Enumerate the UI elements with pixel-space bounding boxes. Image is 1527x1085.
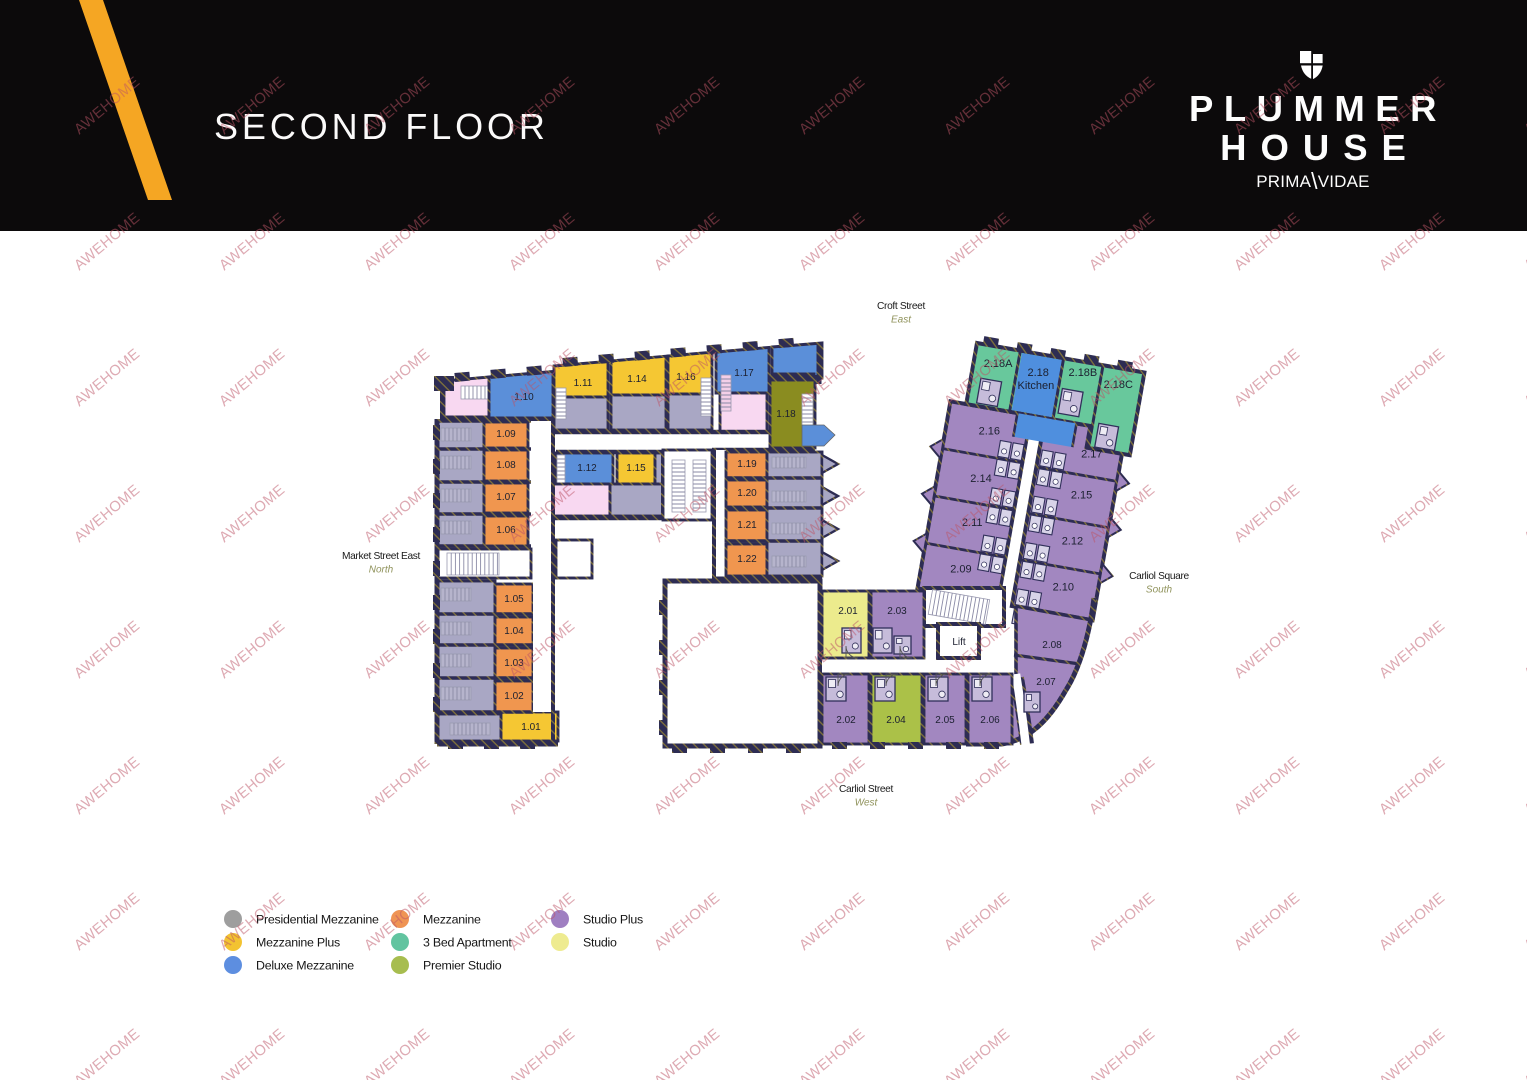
- svg-text:2.17: 2.17: [1081, 449, 1102, 461]
- svg-text:2.08: 2.08: [1042, 640, 1062, 651]
- svg-text:2.04: 2.04: [886, 715, 906, 726]
- svg-text:East: East: [891, 315, 912, 326]
- svg-text:AWEHOME: AWEHOME: [217, 1026, 289, 1080]
- svg-text:AWEHOME: AWEHOME: [1377, 1026, 1449, 1080]
- svg-text:Mezzanine: Mezzanine: [423, 913, 481, 927]
- svg-text:2.09: 2.09: [950, 564, 971, 576]
- svg-text:2.05: 2.05: [935, 715, 955, 726]
- svg-text:AWEHOME: AWEHOME: [1522, 1026, 1527, 1080]
- svg-text:AWEHOME: AWEHOME: [217, 346, 289, 410]
- svg-text:1.22: 1.22: [737, 554, 757, 565]
- svg-text:AWEHOME: AWEHOME: [1377, 618, 1449, 682]
- svg-text:1.11: 1.11: [574, 378, 593, 389]
- svg-text:AWEHOME: AWEHOME: [507, 754, 579, 818]
- svg-text:AWEHOME: AWEHOME: [217, 754, 289, 818]
- svg-text:AWEHOME: AWEHOME: [1377, 482, 1449, 546]
- svg-text:AWEHOME: AWEHOME: [1522, 890, 1527, 954]
- svg-text:Premier Studio: Premier Studio: [423, 959, 502, 973]
- svg-text:AWEHOME: AWEHOME: [1232, 754, 1304, 818]
- svg-text:AWEHOME: AWEHOME: [797, 890, 869, 954]
- svg-text:2.02: 2.02: [836, 715, 856, 726]
- svg-text:1.02: 1.02: [504, 691, 524, 702]
- svg-text:AWEHOME: AWEHOME: [652, 890, 724, 954]
- svg-text:AWEHOME: AWEHOME: [72, 482, 144, 546]
- svg-text:South: South: [1146, 585, 1173, 596]
- svg-text:AWEHOME: AWEHOME: [362, 346, 434, 410]
- svg-text:AWEHOME: AWEHOME: [362, 754, 434, 818]
- svg-text:AWEHOME: AWEHOME: [362, 482, 434, 546]
- svg-text:AWEHOME: AWEHOME: [217, 618, 289, 682]
- svg-text:AWEHOME: AWEHOME: [942, 754, 1014, 818]
- svg-text:2.16: 2.16: [979, 426, 1000, 438]
- svg-text:3 Bed Apartment: 3 Bed Apartment: [423, 936, 512, 950]
- svg-text:AWEHOME: AWEHOME: [797, 1026, 869, 1080]
- svg-text:1.17: 1.17: [734, 368, 754, 379]
- svg-text:Presidential Mezzanine: Presidential Mezzanine: [256, 913, 379, 927]
- svg-text:2.18B: 2.18B: [1069, 367, 1098, 379]
- svg-text:1.14: 1.14: [627, 374, 647, 385]
- svg-text:AWEHOME: AWEHOME: [72, 1026, 144, 1080]
- svg-text:1.12: 1.12: [577, 463, 597, 474]
- svg-text:1.21: 1.21: [737, 520, 757, 531]
- svg-text:Market Street East: Market Street East: [342, 551, 421, 562]
- svg-text:AWEHOME: AWEHOME: [1377, 890, 1449, 954]
- svg-text:AWEHOME: AWEHOME: [942, 1026, 1014, 1080]
- svg-text:AWEHOME: AWEHOME: [72, 346, 144, 410]
- svg-text:AWEHOME: AWEHOME: [72, 890, 144, 954]
- svg-text:2.12: 2.12: [1062, 536, 1083, 548]
- svg-text:AWEHOME: AWEHOME: [362, 1026, 434, 1080]
- svg-text:West: West: [855, 798, 879, 809]
- svg-text:2.03: 2.03: [887, 606, 907, 617]
- svg-text:PRIMA\VIDAE: PRIMA\VIDAE: [1256, 168, 1369, 194]
- svg-text:Mezzanine Plus: Mezzanine Plus: [256, 936, 340, 950]
- svg-text:Deluxe Mezzanine: Deluxe Mezzanine: [256, 959, 354, 973]
- svg-text:Studio: Studio: [583, 936, 617, 950]
- svg-text:1.15: 1.15: [626, 463, 646, 474]
- svg-text:1.04: 1.04: [504, 626, 524, 637]
- svg-text:Croft Street: Croft Street: [877, 301, 925, 312]
- svg-text:Studio Plus: Studio Plus: [583, 913, 643, 927]
- svg-text:AWEHOME: AWEHOME: [1232, 346, 1304, 410]
- svg-text:1.19: 1.19: [737, 459, 757, 470]
- svg-text:AWEHOME: AWEHOME: [1087, 1026, 1159, 1080]
- svg-text:Carliol Street: Carliol Street: [839, 784, 894, 795]
- svg-text:AWEHOME: AWEHOME: [942, 890, 1014, 954]
- svg-text:AWEHOME: AWEHOME: [1087, 890, 1159, 954]
- svg-text:AWEHOME: AWEHOME: [362, 618, 434, 682]
- svg-text:1.07: 1.07: [496, 492, 516, 503]
- svg-text:AWEHOME: AWEHOME: [72, 618, 144, 682]
- svg-text:AWEHOME: AWEHOME: [1522, 618, 1527, 682]
- svg-text:AWEHOME: AWEHOME: [1087, 618, 1159, 682]
- svg-text:AWEHOME: AWEHOME: [652, 1026, 724, 1080]
- svg-text:2.07: 2.07: [1036, 677, 1056, 688]
- svg-text:AWEHOME: AWEHOME: [1522, 482, 1527, 546]
- svg-text:North: North: [369, 565, 394, 576]
- svg-text:1.20: 1.20: [737, 488, 757, 499]
- svg-text:AWEHOME: AWEHOME: [1377, 754, 1449, 818]
- svg-text:2.14: 2.14: [970, 473, 991, 485]
- svg-text:AWEHOME: AWEHOME: [1522, 754, 1527, 818]
- svg-text:2.01: 2.01: [838, 606, 858, 617]
- svg-text:2.06: 2.06: [980, 715, 1000, 726]
- svg-text:Lift: Lift: [952, 637, 966, 648]
- svg-text:2.15: 2.15: [1071, 490, 1092, 502]
- svg-text:AWEHOME: AWEHOME: [1232, 890, 1304, 954]
- svg-text:2.10: 2.10: [1053, 582, 1074, 594]
- svg-text:AWEHOME: AWEHOME: [652, 754, 724, 818]
- svg-text:AWEHOME: AWEHOME: [507, 1026, 579, 1080]
- svg-text:AWEHOME: AWEHOME: [72, 754, 144, 818]
- svg-text:1.05: 1.05: [504, 594, 524, 605]
- svg-text:AWEHOME: AWEHOME: [1232, 482, 1304, 546]
- svg-text:AWEHOME: AWEHOME: [1232, 1026, 1304, 1080]
- svg-text:Carliol Square: Carliol Square: [1129, 571, 1189, 582]
- svg-text:AWEHOME: AWEHOME: [217, 482, 289, 546]
- svg-text:AWEHOME: AWEHOME: [1377, 346, 1449, 410]
- svg-text:1.08: 1.08: [496, 460, 516, 471]
- svg-text:1.01: 1.01: [521, 722, 541, 733]
- svg-text:AWEHOME: AWEHOME: [1087, 754, 1159, 818]
- svg-text:AWEHOME: AWEHOME: [1232, 618, 1304, 682]
- svg-text:Kitchen: Kitchen: [1018, 380, 1055, 392]
- svg-text:AWEHOME: AWEHOME: [1522, 346, 1527, 410]
- svg-text:2.18: 2.18: [1027, 367, 1048, 379]
- svg-text:1.09: 1.09: [496, 429, 516, 440]
- svg-text:1.18: 1.18: [776, 409, 796, 420]
